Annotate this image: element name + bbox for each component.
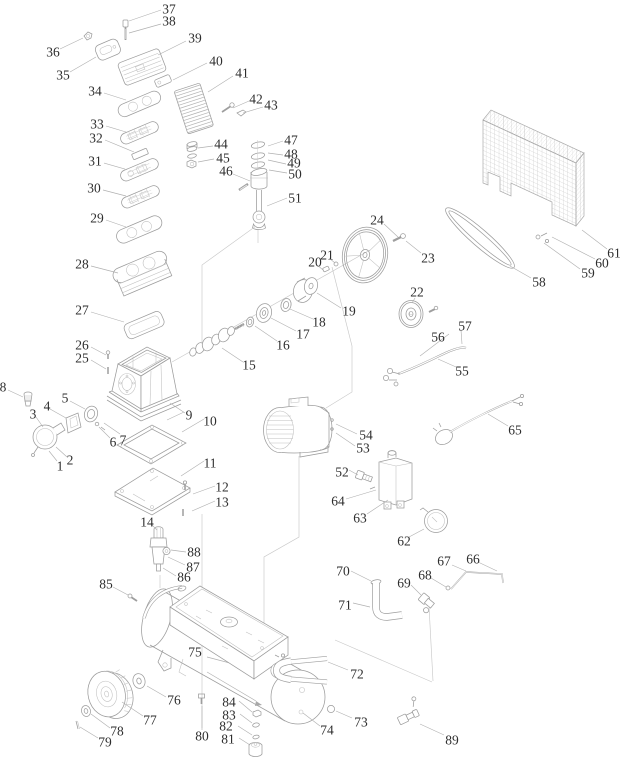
svg-text:59: 59 [581, 266, 595, 281]
svg-text:11: 11 [204, 456, 217, 471]
svg-text:2: 2 [67, 453, 74, 468]
svg-text:38: 38 [162, 14, 176, 29]
svg-text:43: 43 [264, 98, 278, 113]
svg-text:10: 10 [203, 414, 217, 429]
svg-text:79: 79 [98, 735, 112, 750]
svg-text:73: 73 [354, 715, 368, 730]
svg-text:35: 35 [56, 68, 70, 83]
svg-text:30: 30 [87, 181, 101, 196]
svg-text:34: 34 [88, 84, 102, 99]
svg-text:70: 70 [336, 564, 350, 579]
svg-text:24: 24 [370, 213, 384, 228]
svg-text:89: 89 [445, 733, 459, 748]
svg-text:88: 88 [187, 545, 201, 560]
svg-text:55: 55 [455, 364, 469, 379]
svg-text:54: 54 [359, 428, 373, 443]
svg-text:12: 12 [215, 480, 229, 495]
svg-text:17: 17 [296, 327, 310, 342]
svg-text:22: 22 [410, 285, 424, 300]
svg-text:27: 27 [75, 303, 89, 318]
svg-text:33: 33 [90, 117, 104, 132]
svg-text:84: 84 [222, 695, 236, 710]
svg-text:1: 1 [57, 459, 64, 474]
svg-text:28: 28 [75, 257, 89, 272]
svg-text:3: 3 [30, 407, 37, 422]
svg-text:74: 74 [320, 723, 334, 738]
svg-text:64: 64 [331, 494, 345, 509]
svg-text:69: 69 [397, 576, 411, 591]
svg-text:72: 72 [350, 667, 364, 682]
svg-text:68: 68 [418, 568, 432, 583]
svg-text:7: 7 [120, 433, 127, 448]
svg-text:52: 52 [335, 465, 349, 480]
svg-text:75: 75 [188, 645, 202, 660]
svg-text:5: 5 [62, 391, 69, 406]
svg-text:19: 19 [342, 304, 356, 319]
svg-text:76: 76 [167, 693, 181, 708]
svg-text:83: 83 [222, 708, 236, 723]
svg-text:81: 81 [221, 732, 235, 747]
svg-text:63: 63 [353, 511, 367, 526]
svg-text:56: 56 [431, 330, 445, 345]
svg-text:58: 58 [532, 275, 546, 290]
svg-text:66: 66 [466, 552, 480, 567]
svg-text:77: 77 [143, 713, 157, 728]
svg-text:46: 46 [219, 164, 233, 179]
svg-text:9: 9 [186, 408, 193, 423]
svg-text:80: 80 [195, 729, 209, 744]
svg-text:29: 29 [90, 211, 104, 226]
svg-text:62: 62 [397, 534, 411, 549]
svg-text:67: 67 [437, 554, 451, 569]
svg-text:32: 32 [89, 131, 103, 146]
svg-text:36: 36 [46, 45, 60, 60]
svg-text:25: 25 [75, 351, 89, 366]
svg-text:57: 57 [458, 319, 472, 334]
svg-text:18: 18 [312, 315, 326, 330]
svg-text:26: 26 [75, 338, 89, 353]
svg-text:8: 8 [0, 380, 7, 395]
svg-text:85: 85 [99, 577, 113, 592]
svg-text:40: 40 [209, 54, 223, 69]
svg-text:71: 71 [338, 598, 352, 613]
svg-text:6: 6 [110, 435, 117, 450]
svg-text:14: 14 [140, 515, 154, 530]
svg-text:47: 47 [284, 133, 298, 148]
svg-text:15: 15 [242, 358, 256, 373]
svg-text:4: 4 [44, 399, 51, 414]
svg-text:78: 78 [110, 724, 124, 739]
svg-text:50: 50 [288, 167, 302, 182]
svg-text:13: 13 [215, 495, 229, 510]
svg-text:87: 87 [186, 560, 200, 575]
svg-text:39: 39 [188, 31, 202, 46]
svg-text:51: 51 [288, 191, 302, 206]
svg-text:53: 53 [356, 441, 370, 456]
svg-text:41: 41 [235, 66, 249, 81]
svg-text:65: 65 [508, 423, 522, 438]
svg-text:16: 16 [276, 338, 290, 353]
svg-text:44: 44 [214, 137, 228, 152]
svg-text:23: 23 [421, 251, 435, 266]
svg-text:31: 31 [88, 154, 102, 169]
svg-text:42: 42 [249, 92, 263, 107]
svg-text:61: 61 [607, 246, 621, 261]
svg-text:21: 21 [320, 248, 334, 263]
